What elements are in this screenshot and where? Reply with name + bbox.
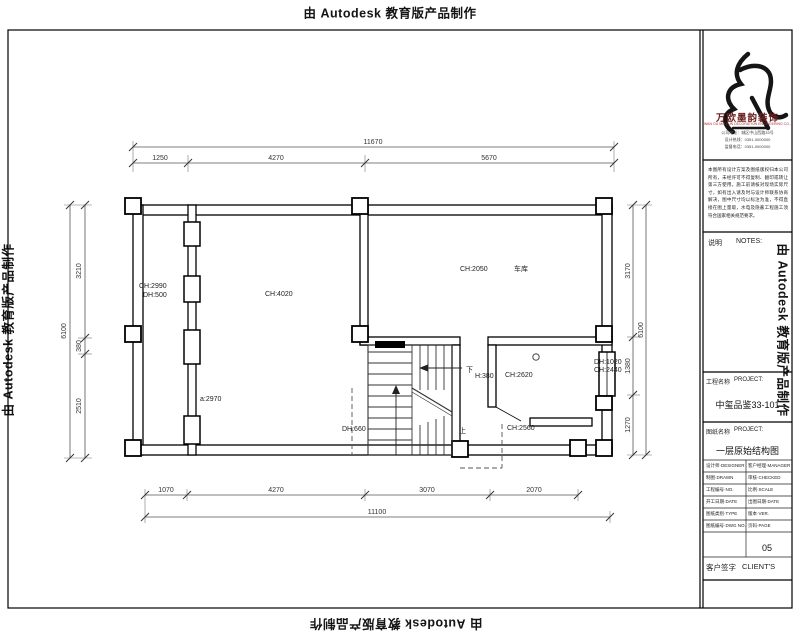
dim-bottom-3: 3070 xyxy=(419,487,435,494)
table-r5-r: 版本·VER. xyxy=(748,511,769,517)
table-r4-r: 出图日期·DATE xyxy=(748,499,779,505)
brand-address-2: 设计热线：0351-0000000 xyxy=(704,137,791,143)
room-left-dh-label: DH:500 xyxy=(143,292,167,299)
fixture-circle xyxy=(533,354,539,360)
dim-left-total: 6100 xyxy=(61,323,68,339)
stair-down-label: 下 xyxy=(466,366,473,374)
table-r6-r: 页码·PAGE xyxy=(748,523,771,529)
area-ch-label: CH:2560 xyxy=(507,425,535,432)
drawing-label-en: PROJECT: xyxy=(734,427,763,433)
stair-up-label: 上 xyxy=(459,426,466,435)
notes-label-cn: 说明 xyxy=(708,238,722,248)
dim-top-2: 4270 xyxy=(268,155,284,162)
client-sign-label-en: CLIENT'S xyxy=(742,562,775,571)
drawing-value: 一层原始结构图 xyxy=(704,444,791,457)
table-r3-r: 比例·SCALE xyxy=(748,487,773,493)
client-sign-label-cn: 客户签字 xyxy=(706,562,736,573)
table-r1-r: 客户经理·MANAGER xyxy=(748,463,790,469)
table-r2-r: 审核·CHECKED xyxy=(748,475,781,481)
stair-dh-label: DH:660 xyxy=(342,426,366,433)
project-label-cn: 工程名称 xyxy=(706,377,730,386)
stair-a-label: a:2970 xyxy=(200,396,222,403)
plan-labels: CH:2990 DH:500 CH:4020 CH:2050 车库 下 上 DH… xyxy=(139,264,622,435)
garage-name-label: 车库 xyxy=(514,264,528,273)
room-left-ch-label: CH:2990 xyxy=(139,283,167,290)
project-label-en: PROJECT: xyxy=(734,377,763,383)
table-r3-l: 工程编号·NO. xyxy=(706,487,734,493)
small-room-ch-label: CH:2620 xyxy=(505,372,533,379)
window-ch-label: CH:2440 xyxy=(594,367,622,374)
dim-right-2: 1380 xyxy=(625,358,632,374)
table-r4-l: 开工日期·DATE xyxy=(706,499,737,505)
room-main-ch-label: CH:4020 xyxy=(265,291,293,298)
window-symbols xyxy=(184,222,615,444)
table-r6-l: 图纸编号·DWG NO. xyxy=(706,523,746,529)
cad-sheet: { "watermark": { "text": "由 Autodesk 教育版… xyxy=(0,0,800,640)
dim-top-total: 11670 xyxy=(364,139,383,146)
garage-ch-label: CH:2050 xyxy=(460,266,488,273)
drawing-label-cn: 图纸名称 xyxy=(706,427,730,436)
dim-bottom-2: 4270 xyxy=(268,487,284,494)
small-room-h-label: H:380 xyxy=(475,373,494,380)
dim-bottom-1: 1070 xyxy=(158,487,174,494)
dim-bottom-total: 11100 xyxy=(368,509,387,516)
dashed-lines xyxy=(352,388,502,468)
brand-subtitle: WAN OU MO YUN DECORATION ENGINEERING CO.… xyxy=(704,122,791,126)
table-r1-l: 设计师·DESIGNER xyxy=(706,463,745,469)
sheet-frame xyxy=(8,30,792,608)
disclaimer-paragraph: 本图所有设计方案及图纸版权归本公司所有，未经许可不得复制、翻印或转让第三方使用。… xyxy=(708,166,788,219)
project-value: 中玺品鉴33-101 xyxy=(704,398,791,411)
table-r5-l: 图纸类别·TYPE xyxy=(706,511,737,517)
table-r2-l: 制图·DRAWN xyxy=(706,475,733,481)
dim-top-1: 1250 xyxy=(152,155,168,162)
window-dh-label: DH:1020 xyxy=(594,359,622,366)
drawing-canvas: CH:2990 DH:500 CH:4020 CH:2050 车库 下 上 DH… xyxy=(0,0,800,640)
page-number: 05 xyxy=(762,543,772,553)
dim-right-total: 6100 xyxy=(638,322,645,338)
dim-left-1: 3210 xyxy=(76,263,83,279)
dim-right-3: 1270 xyxy=(625,417,632,433)
dim-left-3: 2510 xyxy=(76,398,83,414)
brand-address-3: 监督电话：0351-0000000 xyxy=(704,144,791,150)
notes-label-en: NOTES: xyxy=(736,238,762,245)
dim-bottom-4: 2070 xyxy=(526,487,542,494)
floor-plan-walls xyxy=(133,205,612,455)
dim-top-3: 5670 xyxy=(481,155,497,162)
brand-address-1: 公司地址：城区中山西路33号 xyxy=(704,130,791,136)
dim-right-1: 3170 xyxy=(625,263,632,279)
staircase xyxy=(368,341,462,455)
dim-left-2: 380 xyxy=(76,340,83,352)
